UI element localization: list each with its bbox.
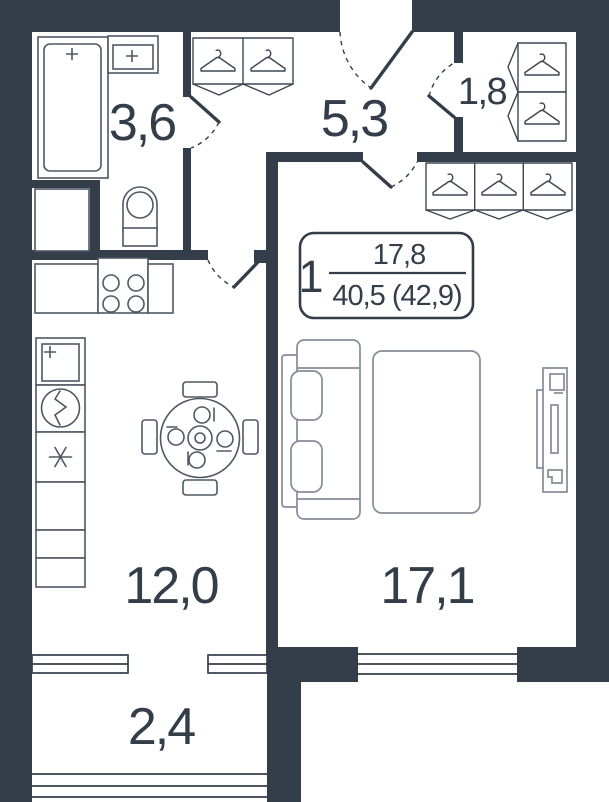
floor-plan-page: 3,6 5,3 1,8 12,0 17,1 2,4 1 17,8 40,5 (4… — [0, 0, 609, 802]
wall-bathroom-right-lower — [183, 148, 191, 250]
wall-bathroom-right-upper — [183, 32, 191, 97]
bathtub — [38, 37, 108, 178]
washing-machine — [36, 385, 85, 432]
room-label-balcony: 2,4 — [128, 698, 195, 756]
kitchen-counter — [35, 264, 98, 313]
chair — [183, 382, 217, 397]
kitchen-balcony-window-left — [32, 655, 128, 673]
wall-hallway-bottom-left — [267, 152, 363, 162]
wall-right — [576, 0, 609, 647]
kitchen-sink — [36, 338, 85, 385]
stove — [98, 258, 148, 313]
badge-total-area: 40,5 (42,9) — [332, 280, 461, 312]
badge-living-area: 17,8 — [373, 239, 425, 271]
kitchen-counter — [148, 264, 173, 313]
table-top — [161, 399, 240, 478]
room-label-wardrobe: 1,8 — [458, 71, 507, 113]
room-label-bathroom: 3,6 — [109, 94, 175, 152]
washbasin — [108, 36, 158, 73]
info-badge: 1 17,8 40,5 (42,9) — [298, 233, 473, 318]
bed — [373, 351, 480, 513]
floor-plan: 3,6 5,3 1,8 12,0 17,1 2,4 1 17,8 40,5 (4… — [0, 0, 609, 802]
kitchen-cabinet — [36, 482, 85, 530]
tv-screen — [551, 405, 558, 453]
wall-closet-left-upper — [454, 32, 463, 63]
sofa — [282, 340, 360, 519]
chair — [243, 420, 258, 454]
wall-balcony-right — [267, 647, 301, 802]
living-room-wardrobe — [426, 163, 572, 219]
room-label-hallway: 5,3 — [321, 90, 387, 148]
toilet — [123, 187, 157, 246]
wall-closet-left-lower — [454, 117, 463, 152]
sofa-cushion — [291, 441, 322, 492]
chair — [142, 420, 157, 454]
kitchen-cabinet — [36, 558, 85, 587]
kitchen-cabinet — [36, 530, 85, 558]
wall-top-left — [0, 0, 340, 32]
wall-kitchen-living — [266, 152, 278, 655]
ventilation-shaft — [35, 189, 89, 251]
wall-shaft-right — [90, 188, 100, 252]
room-label-living-room: 17,1 — [380, 557, 473, 615]
refrigerator — [36, 432, 85, 482]
kitchen-balcony-window-right — [208, 655, 267, 673]
badge-rooms-count: 1 — [298, 251, 323, 302]
wall-left — [0, 0, 32, 802]
wall-bottom-right — [517, 647, 609, 682]
sofa-cushion — [291, 371, 322, 420]
chair — [183, 480, 217, 495]
wall-hallway-bottom-right — [417, 152, 576, 162]
wall-shaft-top — [32, 180, 100, 188]
room-label-kitchen: 12,0 — [124, 557, 217, 615]
